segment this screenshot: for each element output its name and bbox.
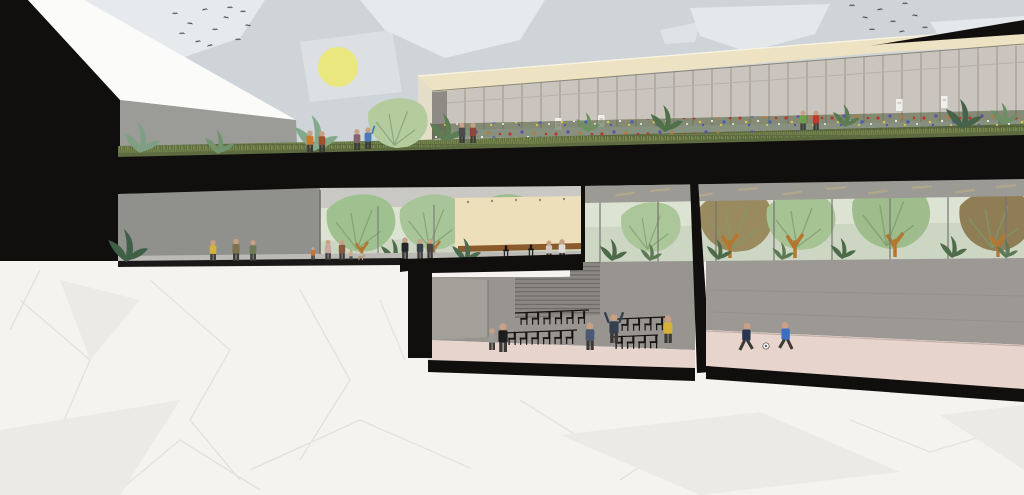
basement-auditorium (428, 261, 695, 368)
sun (318, 47, 358, 87)
gallery-back-wall (118, 188, 320, 262)
sports-hall-wall (706, 258, 1024, 345)
basement-sports-hall (706, 258, 1024, 402)
architectural-section-illustration (0, 0, 1024, 495)
auditorium-side-wall (428, 277, 488, 340)
glazed-middle-hall (585, 179, 1024, 262)
cafe-corner-post (581, 186, 585, 263)
